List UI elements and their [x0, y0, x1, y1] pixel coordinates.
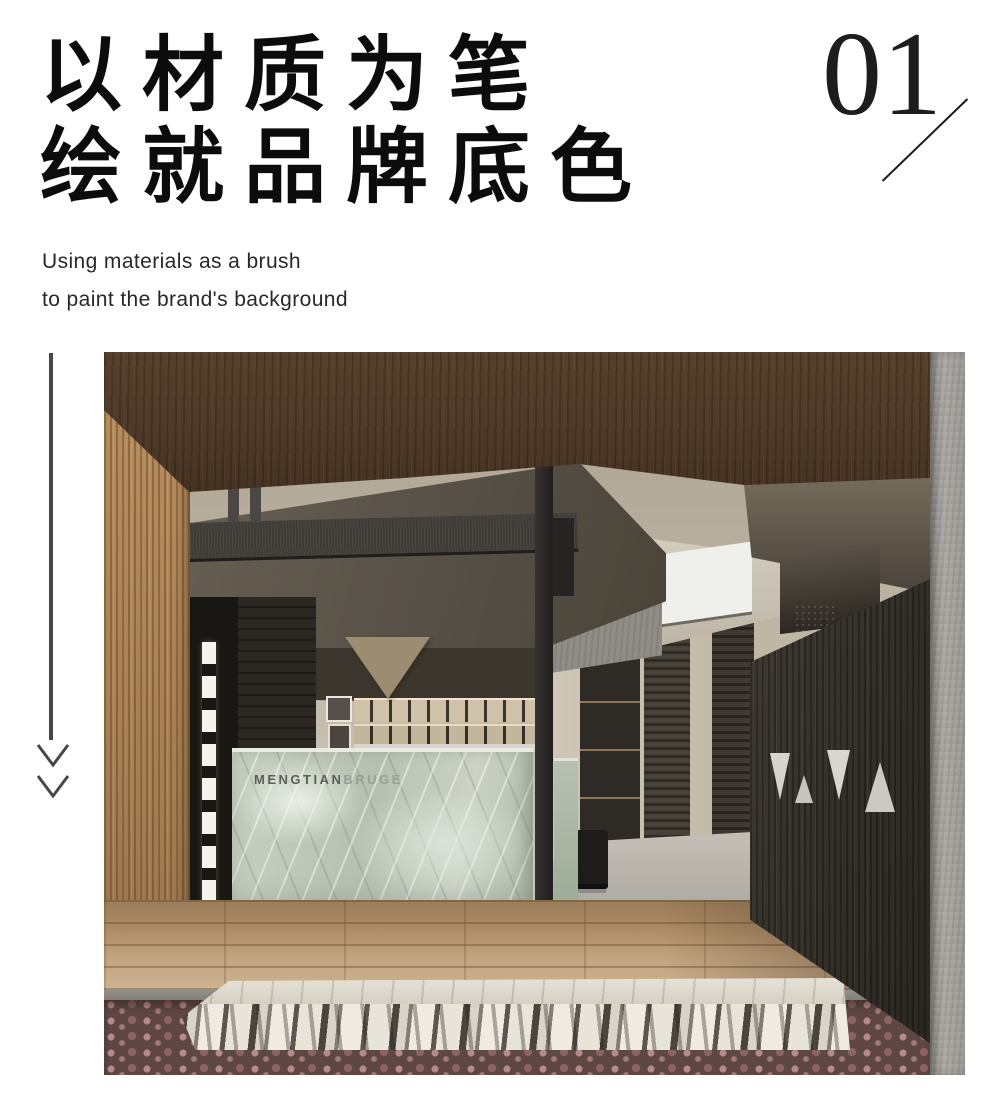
desk-logo: MENGTIANBRUGE	[254, 772, 403, 787]
concrete-column	[930, 352, 965, 1075]
triangle-cutout	[770, 753, 790, 800]
picture-frame	[326, 696, 352, 722]
lit-niches	[202, 642, 216, 910]
title-line-1: 以材质为笔	[40, 30, 652, 122]
triangle-cutout	[795, 775, 813, 803]
triangle-cutout	[827, 750, 850, 800]
subtitle-line-1: Using materials as a brush	[42, 243, 348, 281]
steel-column	[535, 465, 553, 910]
picture-frame	[328, 724, 351, 750]
desk-logo-secondary: BRUGE	[343, 772, 402, 787]
backlit-shelf-row	[354, 698, 536, 722]
marble-desk-return	[554, 758, 578, 915]
vertical-rule	[49, 353, 53, 740]
funnel-pendant	[345, 637, 430, 699]
subtitle: Using materials as a brush to paint the …	[42, 243, 348, 319]
showroom-photo: MENGTIANBRUGE	[104, 352, 965, 1075]
section-number: 01	[822, 14, 942, 134]
subtitle-line-2: to paint the brand's background	[42, 281, 348, 319]
double-chevron-down-icon	[35, 742, 71, 808]
backlit-shelf-row	[354, 724, 536, 746]
marble-step-top	[182, 978, 850, 1004]
title-line-2: 绘就品牌底色	[40, 122, 652, 214]
skylight-panel	[660, 542, 752, 628]
triangle-cutout	[865, 762, 895, 812]
marble-reception-desk: MENGTIANBRUGE	[232, 748, 533, 916]
marble-step-front	[182, 1004, 850, 1050]
desk-logo-primary: MENGTIAN	[254, 772, 343, 787]
veined-marble-step	[182, 978, 850, 1050]
page-title: 以材质为笔 绘就品牌底色	[40, 30, 652, 214]
beam-hanger-post	[250, 482, 261, 522]
page: 以材质为笔 绘就品牌底色 01 Using materials as a bru…	[0, 0, 1000, 1113]
